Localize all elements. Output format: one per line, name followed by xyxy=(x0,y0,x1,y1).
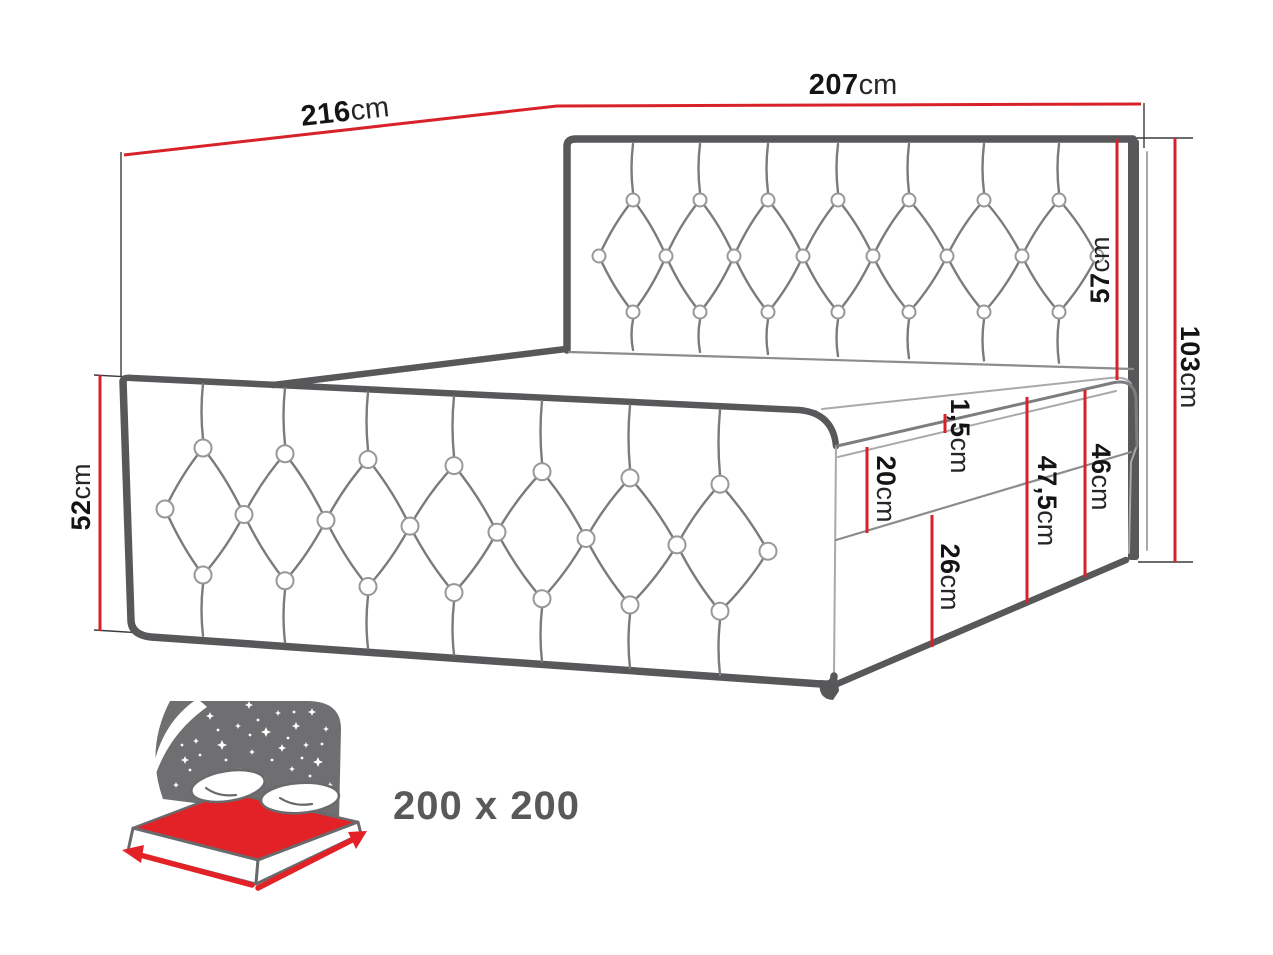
tuft-line xyxy=(285,520,326,580)
tuft-line xyxy=(203,515,244,575)
tuft-line xyxy=(368,526,410,586)
tuft-button xyxy=(534,463,551,480)
tuft-button xyxy=(867,250,880,263)
label-total-side-47-5: 47,5cm xyxy=(1032,456,1062,547)
star-dot-icon xyxy=(189,769,192,772)
star-dot-icon xyxy=(271,759,274,762)
tuft-line xyxy=(629,614,631,668)
tuft-line xyxy=(410,526,454,592)
tuft-line xyxy=(734,256,768,312)
tuft-button xyxy=(195,440,212,457)
tuft-line xyxy=(326,460,368,521)
mattress-top xyxy=(273,349,1131,411)
tuft-button xyxy=(694,306,707,319)
tuft-button xyxy=(195,567,212,584)
tuft-button xyxy=(1053,194,1066,207)
tuft-button xyxy=(797,250,810,263)
tuft-button xyxy=(402,518,419,535)
star-dot-icon xyxy=(217,729,220,732)
tuft-line xyxy=(633,256,666,312)
tuft-line xyxy=(984,256,1022,312)
tuft-button xyxy=(712,476,729,493)
tuft-line xyxy=(837,144,839,193)
tuft-button xyxy=(832,306,845,319)
tuft-button xyxy=(760,543,777,560)
tuft-line xyxy=(873,200,909,256)
tuft-line xyxy=(497,472,542,533)
tuft-line xyxy=(700,256,734,312)
tuft-line xyxy=(1058,320,1060,363)
tuft-line xyxy=(719,410,721,475)
tuft-line xyxy=(586,478,630,539)
tuft-line xyxy=(542,538,586,598)
tuft-line xyxy=(453,602,455,655)
tuft-button xyxy=(694,194,707,207)
tuft-line xyxy=(630,545,677,605)
tuft-line xyxy=(285,454,326,521)
tuft-line xyxy=(202,384,204,439)
label-headboard-height-103: 103cm xyxy=(1175,326,1205,409)
tuft-button xyxy=(728,250,741,263)
tuft-line xyxy=(244,515,285,581)
tuft-button xyxy=(660,250,673,263)
tuft-line xyxy=(542,472,586,539)
tuft-line xyxy=(284,590,286,642)
label-topper-1-5: 1,5cm xyxy=(945,398,975,473)
tuft-line xyxy=(629,405,631,468)
tuft-line xyxy=(983,320,985,361)
size-pictogram: 200 x 200 xyxy=(122,699,580,888)
dimension-lines xyxy=(100,104,1175,647)
tuft-line xyxy=(767,144,769,193)
tuft-line xyxy=(632,320,634,350)
tuft-button xyxy=(157,501,174,518)
star-dot-icon xyxy=(287,737,290,740)
label-width-207: 207cm xyxy=(809,69,898,101)
tuft-button xyxy=(832,194,845,207)
tuft-line xyxy=(699,144,701,193)
tuft-line xyxy=(720,484,768,551)
tuft-line xyxy=(719,621,721,675)
base-side-face xyxy=(820,382,1137,700)
tuft-line xyxy=(1022,200,1059,256)
tuft-line xyxy=(768,256,803,312)
tuft-line xyxy=(284,388,286,444)
label-mattress-20: 20cm xyxy=(871,455,901,522)
tuft-button xyxy=(622,596,639,613)
tuft-line xyxy=(453,397,455,457)
tuft-line xyxy=(699,320,701,352)
tuft-line xyxy=(367,392,369,450)
tuft-line xyxy=(454,466,497,533)
tuft-line xyxy=(947,256,984,312)
tuft-button xyxy=(277,572,294,589)
tuft-button xyxy=(978,306,991,319)
tuft-button xyxy=(489,524,506,541)
tuft-line xyxy=(803,200,838,256)
tuft-line xyxy=(768,200,803,256)
tuft-line xyxy=(165,448,203,509)
tuft-line xyxy=(983,144,985,193)
size-label: 200 x 200 xyxy=(393,784,580,828)
tuft-button xyxy=(903,306,916,319)
tuft-line xyxy=(202,585,204,636)
tuft-button xyxy=(360,578,377,595)
tuft-button xyxy=(360,451,377,468)
tuft-line xyxy=(873,256,909,312)
bed-dimension-diagram: 216cm 207cm 103cm 57cm 52cm 1,5cm 20cm 2… xyxy=(0,0,1273,955)
tuft-button xyxy=(627,194,640,207)
tuft-line xyxy=(947,200,984,256)
star-dot-icon xyxy=(309,775,312,778)
tuft-button xyxy=(712,603,729,620)
tuft-line xyxy=(984,200,1022,256)
label-base-26: 26cm xyxy=(935,543,965,610)
label-side-panel-52: 52cm xyxy=(66,463,96,530)
tuft-line xyxy=(633,200,666,256)
tuft-line xyxy=(677,545,720,611)
label-headboard-above-57: 57cm xyxy=(1085,236,1115,303)
tuft-button xyxy=(446,584,463,601)
tuft-line xyxy=(632,144,634,193)
tuft-line xyxy=(599,256,633,312)
tuft-button xyxy=(669,536,686,553)
tuft-line xyxy=(454,532,497,592)
tuft-line xyxy=(909,256,947,312)
tuft-line xyxy=(410,466,454,527)
star-dot-icon xyxy=(321,743,324,746)
tuft-line xyxy=(541,401,543,462)
tuft-button xyxy=(762,306,775,319)
tuft-line xyxy=(586,538,630,604)
tuft-line xyxy=(666,256,700,312)
tuft-button xyxy=(318,512,335,529)
star-dot-icon xyxy=(181,744,184,747)
tuft-button xyxy=(534,590,551,607)
tuft-line xyxy=(838,256,873,312)
tuft-line xyxy=(367,596,369,648)
dim-line-207 xyxy=(557,104,1141,106)
tuft-line xyxy=(803,256,838,312)
tuft-line xyxy=(326,520,368,586)
tuft-button xyxy=(762,194,775,207)
bed-drawing xyxy=(123,139,1147,700)
tuft-line xyxy=(908,144,910,193)
headboard-tufting xyxy=(593,144,1104,363)
tuft-button xyxy=(277,445,294,462)
tuft-button xyxy=(941,250,954,263)
tuft-button xyxy=(903,194,916,207)
star-dot-icon xyxy=(225,759,228,762)
bed-leg xyxy=(820,680,839,700)
foot-panel xyxy=(123,378,836,685)
bed-diagram-svg: 216cm 207cm 103cm 57cm 52cm 1,5cm 20cm 2… xyxy=(0,0,1273,955)
tuft-button xyxy=(978,194,991,207)
label-mattress-plus-base-46: 46cm xyxy=(1086,443,1116,510)
tuft-button xyxy=(627,306,640,319)
tuft-line xyxy=(700,200,734,256)
star-dot-icon xyxy=(199,754,202,757)
star-dot-icon xyxy=(257,719,260,722)
tuft-line xyxy=(837,320,839,357)
tuft-line xyxy=(908,320,910,359)
star-dot-icon xyxy=(249,734,252,737)
tuft-line xyxy=(838,200,873,256)
tuft-line xyxy=(666,200,700,256)
tuft-line xyxy=(497,532,542,598)
tuft-button xyxy=(593,250,606,263)
tuft-line xyxy=(165,509,203,575)
tuft-line xyxy=(734,200,768,256)
tuft-button xyxy=(1053,306,1066,319)
star-dot-icon xyxy=(293,711,296,714)
star-dot-icon xyxy=(301,757,304,760)
tuft-button xyxy=(1016,250,1029,263)
tuft-line xyxy=(599,200,633,256)
tuft-button xyxy=(446,457,463,474)
tuft-line xyxy=(767,320,769,355)
tuft-line xyxy=(541,608,543,661)
tuft-line xyxy=(720,551,768,611)
tuft-line xyxy=(203,448,244,515)
tuft-line xyxy=(1022,256,1059,312)
tuft-line xyxy=(630,478,677,545)
tuft-button xyxy=(578,530,595,547)
tuft-line xyxy=(244,454,285,515)
foot-panel-tufting xyxy=(157,384,777,675)
tuft-button xyxy=(622,469,639,486)
tuft-line xyxy=(677,484,720,545)
tuft-line xyxy=(909,200,947,256)
tuft-button xyxy=(236,506,253,523)
tuft-line xyxy=(368,460,410,527)
tuft-line xyxy=(1058,144,1060,193)
